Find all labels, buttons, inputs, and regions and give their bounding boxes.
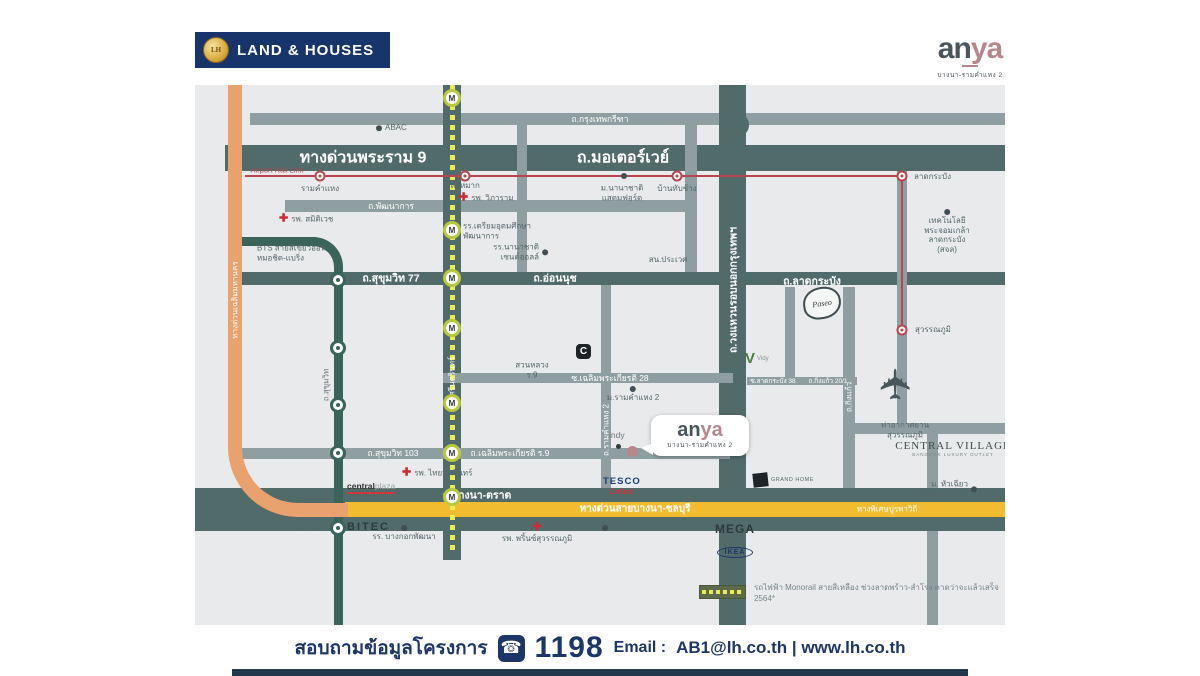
monorail-legend-swatch [699,585,746,599]
c-mall-logo: C [576,344,591,359]
monorail-dash-icon [702,590,742,594]
tesco-lotus-logo: TESCO Lotus [603,477,641,496]
map-poi-label: สุวรรณภูมิ [915,325,951,335]
road-label: ถ.กิ่งแก้ว [843,382,856,412]
central-village-subtitle: BANGKOK LUXURY OUTLET [891,452,1005,457]
poi-dot [602,525,608,531]
phone-icon: ☎ [498,635,525,662]
map-poi-label: ✚รพ. สมิติเวช [279,214,333,225]
vidy-logo: VVidy [745,351,769,366]
road-label: ถ.อ่อนนุช [533,270,576,287]
map-poi-label: บ้านทับช้าง [657,184,696,194]
poi-dot [401,525,407,531]
anya-project-location-dot [627,446,638,457]
grand-home-logo: GRAND HOME [753,473,814,487]
arl-station-icon [897,325,908,336]
map-poi-label: สวนหลวงร.9 [515,360,548,379]
ikea-logo: IKEA [717,547,754,558]
map-poi-label: รามคำแหง [301,184,339,194]
road-label: ทางด่วนสายบางนา-ชลบุรี [580,502,691,517]
road-label: ถ.พัฒนาการ [368,199,414,213]
monorail-legend: รถไฟฟ้า Monorail สายสีเหลือง ช่วงลาดพร้า… [699,581,1005,603]
anya-callout-bubble: anya บางนา-รามคำแหง 2 [651,415,749,456]
bts-station-icon [330,272,346,288]
anya-bubble-subtitle: บางนา-รามคำแหง 2 [654,440,746,450]
poi-dot [971,486,977,492]
road-paseo-side [785,287,795,385]
road-label: ถ.วงแหวนรอบนอกกรุงเทพฯ [725,227,742,353]
anya-bubble-wordmark: anya [654,420,746,440]
poi-dot [621,173,627,179]
monorail-station-icon: M [443,89,461,107]
central-village-title: CENTRAL VILLAGE [891,440,1005,452]
airplane-icon: ✈ [876,366,918,401]
monorail-station-icon: M [443,444,461,462]
indy-dot [616,444,621,449]
arl-station-icon [460,171,471,182]
poi-dot [944,209,950,215]
map-poi-label: รร.นานาชาติเซนต์ออลล์ [493,242,548,261]
location-map: ถ.กรุงเทพกรีฑาทางด่วนพระราม 9ถ.มอเตอร์เว… [195,85,1005,625]
arl-station-icon [315,171,326,182]
poi-dot [630,386,636,392]
hospital-cross-icon: ✚ [532,522,541,533]
bts-station-icon [330,397,346,413]
anya-project-logo: anya บางนา-รามคำแหง 2 [926,34,1014,80]
map-poi-label: BTS สายสีเขียวอ่อนหมอชิต-แบริ่ง [257,243,326,262]
phone-number: 1198 [535,631,604,665]
grand-home-mark [752,472,768,487]
bottom-bar [232,669,968,676]
road-label: ถ.ลาดกระบัง [783,273,841,290]
contact-links: AB1@lh.co.th | www.lh.co.th [676,638,905,658]
monorail-legend-text: รถไฟฟ้า Monorail สายสีเหลือง ช่วงลาดพร้า… [754,581,1005,603]
grand-home-text: GRAND HOME [771,477,814,483]
map-poi-label: รร.เตรียมอุดมศึกษาพัฒนาการ [454,221,531,240]
inquiry-label: สอบถามข้อมูลโครงการ [294,633,487,663]
monorail-station-icon: M [443,488,461,506]
road-label: ซ.เฉลิมพระเกียรติ 28 [571,371,648,385]
road-onnut-latkrabang [230,272,1005,285]
bts-station-icon [330,445,346,461]
road-label: ถ.สุขุมวิท 77 [362,270,419,287]
land-and-houses-logo: LH LAND & HOUSES [195,32,390,68]
airport-rail-link-branch [901,176,903,330]
map-poi-label: ✚รพ. พริ้นซ์สุวรรณภูมิ [502,522,572,544]
monorail-station-icon: M [443,394,461,412]
hospital-cross-icon: ✚ [279,214,288,225]
road-label: ถ.กรุงเทพกรีฑา [571,112,628,126]
mega-bangna-logo: MEGA บางนา IKEA [715,523,755,559]
lotus-text: Lotus [603,487,641,496]
map-poi-label: ท่าอากาศยานสุวรรณภูมิ [881,420,929,439]
email-label: Email : [614,639,666,657]
anya-wordmark: anya [926,34,1014,64]
map-poi-label: สน.ประเวศ [649,255,688,265]
anya-subtitle: บางนา-รามคำแหง 2 [926,70,1014,80]
map-poi-label: ลาดกระบัง [914,172,951,182]
bts-station-icon [330,340,346,356]
map-poi-label: หัวหมาก [450,181,480,191]
map-poi-label: ABAC [376,123,407,133]
indy-mall-label: indy [609,430,625,440]
monorail-station-icon: M [443,221,461,239]
lh-logo-text: LAND & HOUSES [237,42,374,59]
centralplaza-logo: centralplaza [347,481,395,494]
road-label: ถ.เฉลิมพระเกียรติ ร.9 [471,446,550,460]
map-poi-label: ม.รามคำแหง 2 [607,386,659,403]
airport-rail-link-line [245,175,903,177]
road-label: ทางด่วนเฉลิมมหานคร [229,261,242,338]
map-poi-label: ✚รพ. วิภาราม [459,193,514,204]
lh-coin-icon: LH [203,37,229,63]
monorail-station-icon: M [443,269,461,287]
poi-dot [376,125,382,131]
hospital-cross-icon: ✚ [402,468,411,479]
road-label: ถ.มอเตอร์เวย์ [577,146,669,171]
the-paseo-logo: Paseo [801,285,843,322]
road-label: ซ.ลาดกระบัง 38 [750,376,795,386]
arl-station-icon [897,171,908,182]
map-poi-label: ม. หัวเฉียวเฉลิมพระเกียรติ [914,479,977,498]
bts-station-icon [330,520,346,536]
road-label: ถ.สุขุมวิท 103 [367,446,418,460]
road-label: ทางพิเศษบูรพาวิถี [857,503,918,516]
road-label: ถ.สุขุมวิท [320,369,333,401]
map-poi-label: ✚รพ. ไทยนครินทร์ [402,468,472,479]
map-poi-label: เทคโนโลยีพระจอมเกล้าลาดกระบัง(สจล) [924,209,970,254]
arl-station-icon [672,171,683,182]
motorway-ramp-loop [725,113,749,137]
map-poi-label: ม.นานาชาติแสตมฟอร์ด [601,183,644,202]
road-label: ทางด่วนพระราม 9 [300,146,427,171]
poi-dot [542,249,548,255]
map-poi-label: Airport Rail Link [251,166,304,175]
contact-footer: สอบถามข้อมูลโครงการ ☎ 1198 Email : AB1@l… [0,626,1200,670]
anya-logo-rule [962,65,978,67]
map-poi-label: บางนา [298,523,321,533]
central-village-logo: CENTRAL VILLAGE BANGKOK LUXURY OUTLET [891,440,1005,457]
bitec-logo: BITEC [347,521,390,533]
monorail-station-icon: M [443,319,461,337]
hospital-cross-icon: ✚ [459,193,468,204]
